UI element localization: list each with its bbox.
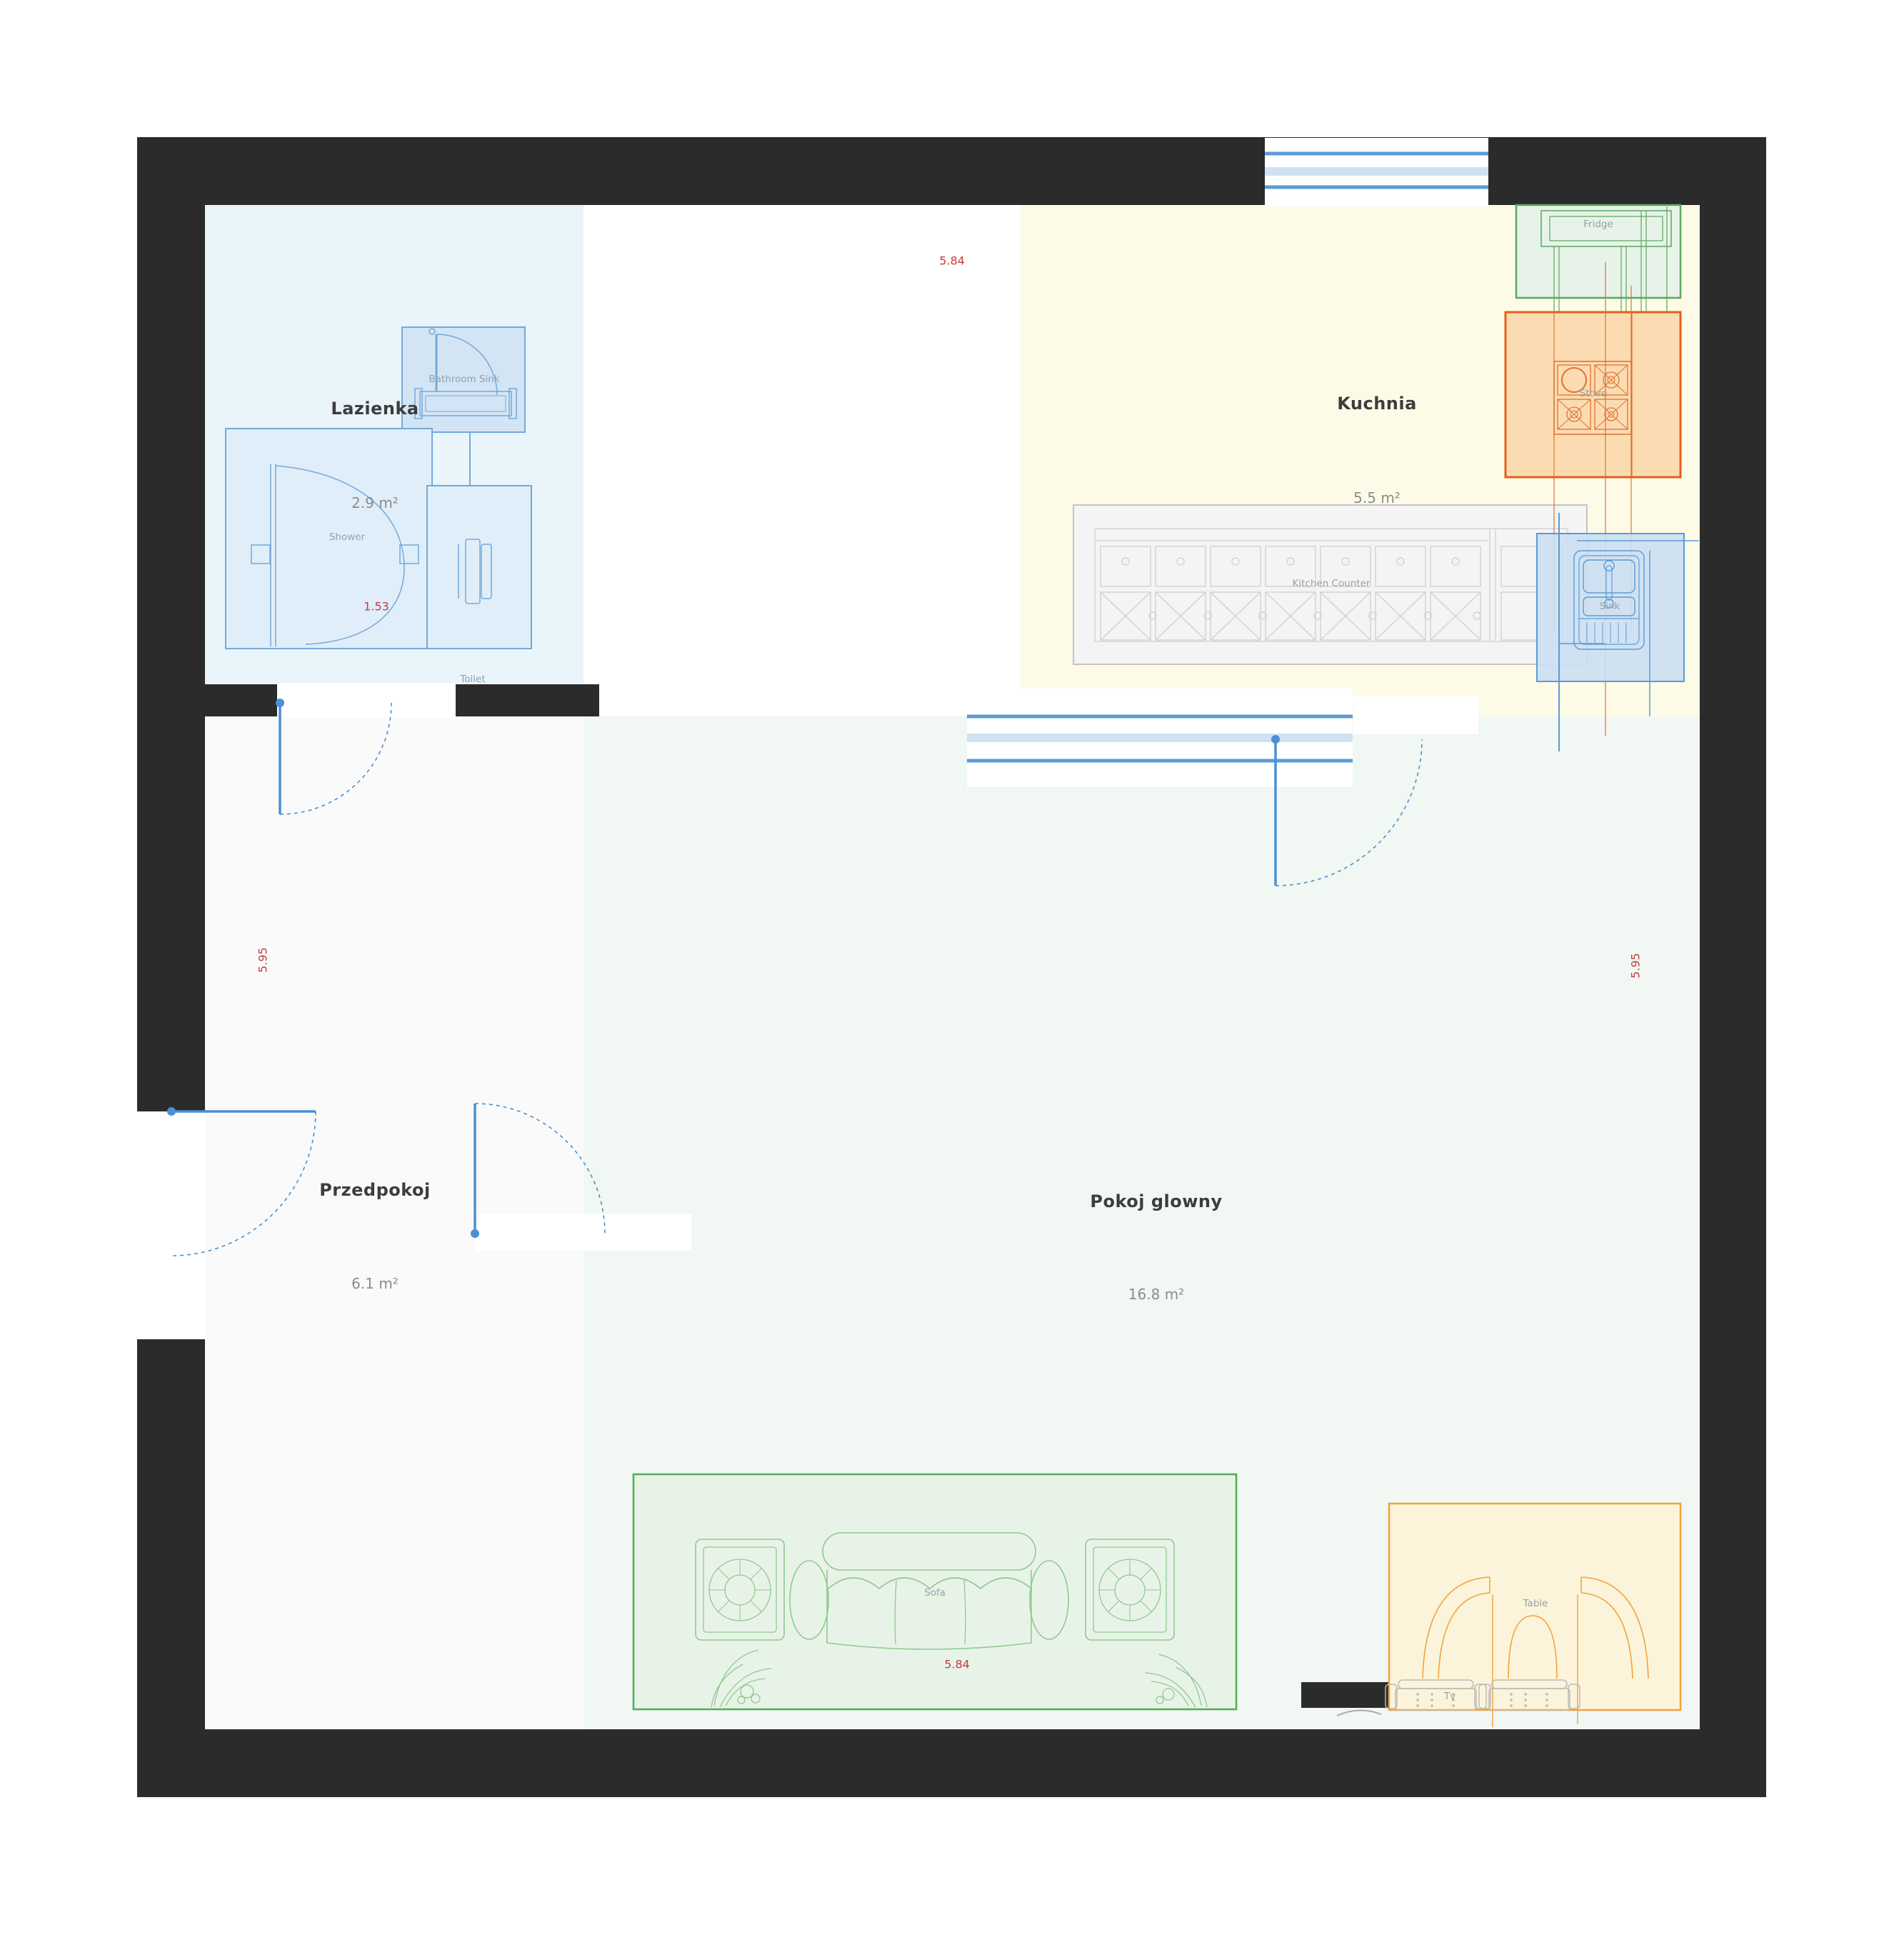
tv-icon[interactable] [1301,1682,1389,1716]
kitchen-window-icon[interactable] [967,716,1353,761]
toilet-icon[interactable] [427,486,531,649]
floor-plan: Lazienka 2.9 m² Shower 1.53 Bathroom Sin… [0,0,1904,1935]
entrance-door-icon[interactable] [167,1107,316,1256]
kitchen-door-icon[interactable] [1271,735,1422,886]
kitchen-counter-icon[interactable] [1073,505,1587,664]
table-zone-icon[interactable] [1386,1504,1680,1727]
sofa-zone-icon[interactable] [633,1474,1236,1709]
plan-drawing-layer [0,0,1904,1935]
top-window-icon[interactable] [1265,154,1488,187]
shower-icon[interactable] [226,429,432,649]
hallway-door-icon[interactable] [471,1104,605,1238]
bathroom-door-icon[interactable] [276,699,391,814]
kitchen-sink-icon[interactable] [1537,513,1699,751]
